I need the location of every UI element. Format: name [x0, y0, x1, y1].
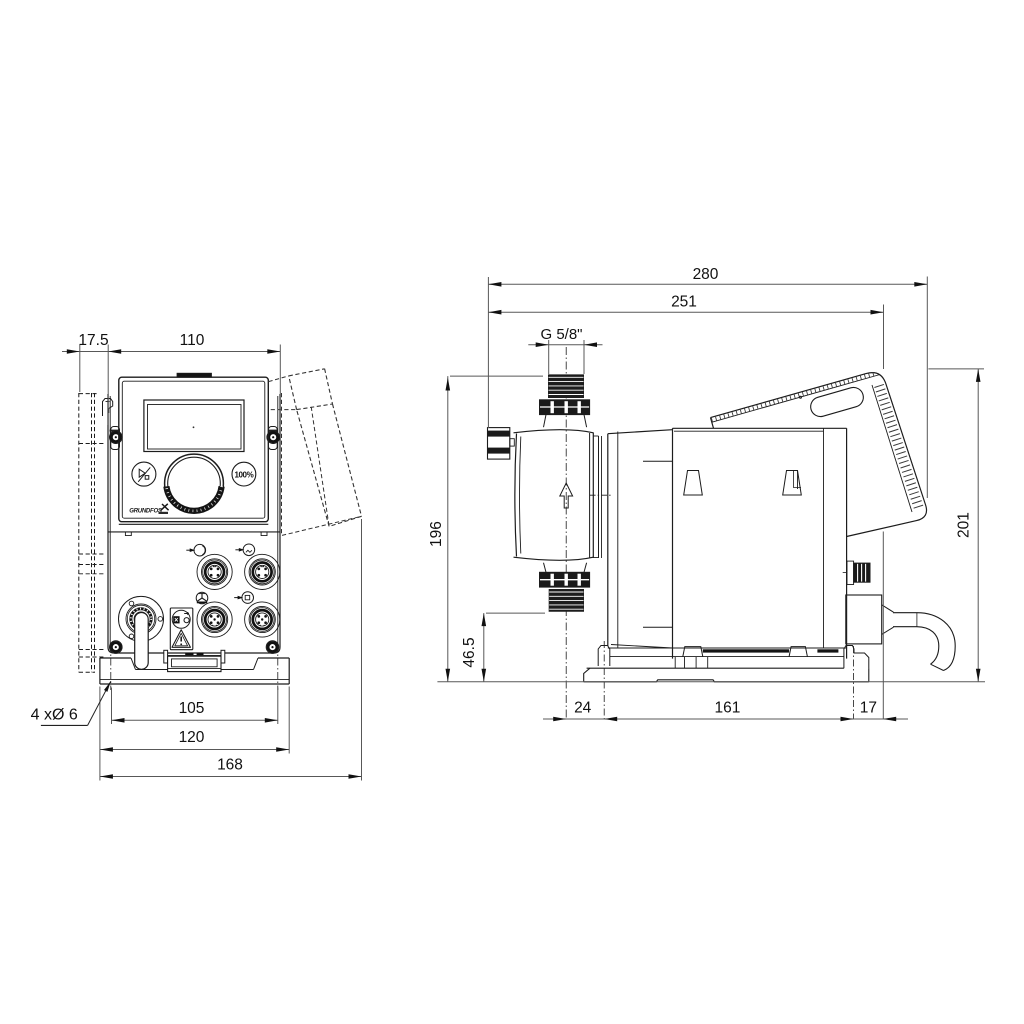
svg-text:280: 280	[693, 266, 719, 283]
svg-text:46.5: 46.5	[461, 637, 478, 667]
svg-text:161: 161	[714, 700, 740, 717]
svg-text:110: 110	[180, 332, 205, 349]
svg-text:105: 105	[179, 700, 205, 717]
svg-text:17.5: 17.5	[78, 332, 108, 349]
svg-text:17: 17	[860, 700, 877, 717]
svg-text:251: 251	[671, 294, 697, 311]
svg-text:196: 196	[428, 521, 445, 547]
svg-text:168: 168	[217, 757, 243, 774]
svg-text:201: 201	[956, 512, 973, 538]
svg-text:G 5/8": G 5/8"	[540, 326, 582, 343]
svg-text:GRUNDFOS: GRUNDFOS	[129, 508, 162, 515]
svg-text:120: 120	[179, 729, 205, 746]
svg-text:100%: 100%	[234, 471, 253, 480]
svg-text:4 xØ 6: 4 xØ 6	[31, 706, 78, 723]
svg-text:24: 24	[574, 700, 592, 717]
